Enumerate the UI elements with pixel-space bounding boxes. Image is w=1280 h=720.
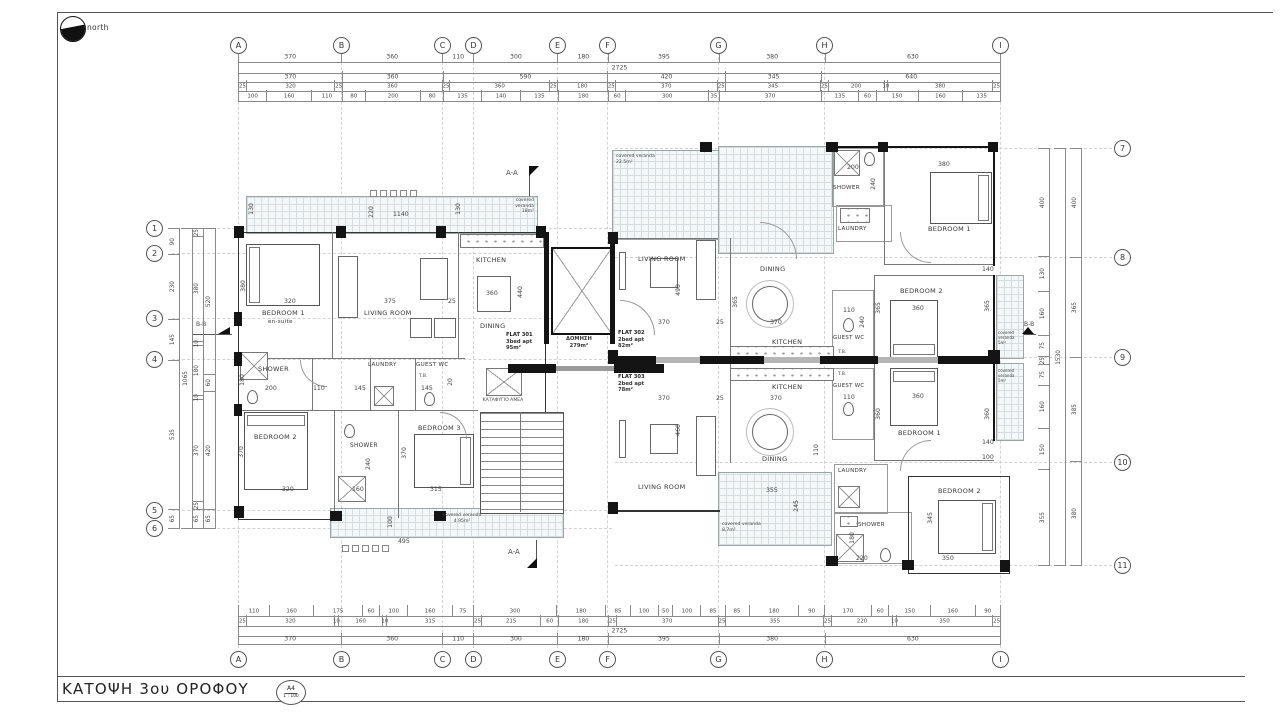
grid-bubble-F-bottom: F [599,651,616,668]
veranda-302-right-label: covered veranda5m² [998,330,1020,345]
right-dim-overall: 1530 [1054,148,1066,566]
wall [832,146,995,148]
dim-segment: 380 [719,633,825,644]
door-swing [900,440,931,471]
dim-segment: 25 [192,501,203,509]
paper-size: A4 [285,685,297,694]
dim-segment: 180 [557,633,608,644]
dim-label: 145 [354,386,366,392]
dim-segment: 135 [821,90,859,101]
dim-segment: 135 [443,90,481,101]
wall [398,410,399,518]
dim-segment: 370 [192,399,203,501]
dim-label: 380 [241,280,247,292]
dim-label: 360 [912,394,924,400]
door-swing [900,232,931,263]
column [608,502,618,514]
landing-wall [556,366,616,371]
dim-label: 25 [716,320,724,326]
column [234,352,242,366]
dim-label: 365 [985,300,991,312]
bottom-dim-chain-grid: 370360110300180395380630 [238,633,1001,645]
dim-label: 370 [239,446,245,458]
dim-segment: 160 [1038,385,1049,429]
column [436,226,446,238]
room-label-shower: SHOWER [858,522,885,528]
dim-segment: 35 [708,90,719,101]
coffee-table [650,424,678,454]
grid-bubble-11: 11 [1114,557,1131,574]
tv-unit [619,420,626,458]
dim-label: 180 [240,374,246,386]
dim-label: 370 [402,447,408,459]
dim-segment: 300 [473,633,557,644]
dim-segment: 380 [719,51,825,62]
room-label-ensuite: en-suite [268,319,293,325]
dim-label: 460 [676,424,682,436]
veranda-301-top-label: covered veranda18m² [500,198,534,215]
wall [612,510,720,512]
dim-label: 200 [847,165,859,171]
grid-bubble-6: 6 [146,520,163,537]
dim-segment: 150 [876,90,918,101]
grid-bubble-4: 4 [146,351,163,368]
toilet [880,548,891,562]
sheet-border-left [57,12,58,702]
veranda-302-right [996,275,1024,359]
dim-segment: 65 [204,509,215,528]
room-label-bedroom2: BEDROOM 2 [938,488,981,495]
grid-bubble-C-top: C [434,37,451,54]
guestwc-303 [832,368,874,440]
grid-bubble-D-bottom: D [465,651,482,668]
section-marker-BB-right: B-B [1024,322,1034,328]
grid-bubble-H-top: H [816,37,833,54]
left-dim-chain-mid: 2538010180103702565 [192,228,204,529]
veranda-post [372,545,379,552]
toilet [247,390,258,404]
dining-table-round [752,414,788,450]
flat302-label: FLAT 3022bed apt82m² [618,330,645,350]
room-label-shower: SHOWER [258,366,289,373]
column [234,506,244,518]
grid-bubble-I-top: I [992,37,1009,54]
dim-label: 365 [733,296,739,308]
dim-segment: 180 [192,345,203,395]
veranda-303-right-label: covered veranda5m² [998,368,1020,383]
dim-label: 240 [366,458,372,470]
flat303-label: FLAT 3032bed apt78m² [618,374,645,394]
veranda-post [410,190,417,197]
flat301-label: FLAT 3013bed apt95m² [506,332,533,352]
dim-segment: 370 [719,90,821,101]
laundry-machines [840,208,870,223]
dim-segment: 630 [825,633,1000,644]
dim-label: 20 [448,378,454,386]
room-label-living: LIVING ROOM [638,484,686,491]
dim-segment: 365 [1070,257,1081,357]
wall [993,275,995,357]
veranda-post [370,190,377,197]
grid-bubble-A-top: A [230,37,247,54]
room-label-shower: SHOWER [350,443,378,449]
room-label-bedroom2: BEDROOM 2 [254,434,297,441]
flat-divider-wall [700,356,764,364]
drawing-title: ΚΑΤΟΨΗ 3ου ΟΡΟΦΟΥ [62,680,249,698]
room-label-guestwc: GUEST WC [833,336,864,342]
top-dim-chain-4: 1001601108020080135140135180603003537013… [238,90,1001,102]
kitchen-counter [730,368,834,381]
grid-bubble-E-bottom: E [549,651,566,668]
north-label: north [87,24,109,32]
grid-line-G [718,52,719,648]
sofa [338,256,358,318]
dim-segment: 90 [168,228,179,254]
basin [840,516,858,527]
veranda-post [380,190,387,197]
dim-segment: 380 [192,236,203,341]
room-label-laundry: LAUNDRY [368,362,397,368]
room-label-bedroom2: BEDROOM 2 [900,288,943,295]
grid-bubble-2: 2 [146,245,163,262]
washing-machine [838,486,860,508]
dim-label: 375 [384,299,396,305]
room-label-bedroom1: BEDROOM 1 [262,310,305,317]
dim-segment: 100 [238,90,266,101]
column [234,226,244,238]
dim-label: 180 [850,532,856,544]
dim-segment: 135 [520,90,558,101]
staircase [480,412,564,514]
dim-segment: 200 [365,90,421,101]
dim-segment: 420 [204,391,215,509]
dim-label: 240 [860,316,866,328]
dim-segment: 630 [825,51,1000,62]
dim-label: 380 [938,162,950,168]
drawing-sheet: north ΚΑΤΟΨΗ 3ου ΟΡΟΦΟΥ A4 1 : 100 A B C… [0,0,1280,720]
dim-label: 100 [982,455,994,461]
room-label-dining: DINING [760,266,785,273]
dim-label: 345 [928,512,934,524]
dim-segment: 110 [311,90,342,101]
wall [238,358,465,359]
dim-segment: 75 [1038,335,1049,356]
column [700,142,712,152]
dim-segment: 360 [341,51,442,62]
sofa [696,416,716,476]
dim-label: 360 [985,408,991,420]
dim-label: 100 [388,516,394,528]
grid-bubble-3: 3 [146,310,163,327]
column [330,511,342,521]
sheet-border-top [57,12,1273,13]
dim-segment: 60 [204,374,215,392]
column [234,404,242,416]
wall [238,410,478,411]
dim-segment: 180 [558,90,608,101]
wall [612,238,718,239]
dim-segment: 25 [1038,356,1049,364]
room-label-kitchen: KITCHEN [772,384,802,391]
wall [730,363,731,463]
dim-label: 200 [265,386,277,392]
dim-label: 490 [676,284,682,296]
scale-badge: A4 1 : 100 [276,680,306,705]
column [988,142,998,152]
veranda-303-bottom [718,472,832,546]
tv-unit [619,252,626,290]
veranda-post [342,545,349,552]
dim-segment: 25 [192,228,203,236]
dim-segment: 160 [1038,291,1049,335]
grid-bubble-7: 7 [1114,140,1131,157]
dim-segment: 60 [608,90,625,101]
grid-bubble-C-bottom: C [434,651,451,668]
armchair [420,258,448,300]
room-label-kitchen: KITCHEN [476,257,506,264]
grid-bubble-5: 5 [146,502,163,519]
room-label-guestwc: GUEST WC [416,362,449,368]
dim-segment: 75 [1038,364,1049,385]
grid-bubble-10: 10 [1114,454,1131,471]
dim-label: 440 [518,286,524,298]
veranda-301-bottom-label: covered veranda4.95m² [440,513,484,524]
room-label-laundry: LAUNDRY [838,226,867,232]
bed [246,244,320,306]
wall [458,232,459,358]
grid-bubble-F-top: F [599,37,616,54]
dim-label: 140 [982,267,994,273]
washing-machine [374,386,394,406]
grid-bubble-B-top: B [333,37,350,54]
dim-label: 110 [313,386,325,392]
dining-table-round [752,286,788,322]
dim-label: 370 [770,320,782,326]
veranda-301-top [246,196,538,234]
titleblock-line-top [57,676,1245,677]
dim-segment: 180 [557,51,608,62]
dim-segment: 160 [918,90,963,101]
dim-segment: 520 [204,228,215,374]
bed [930,172,992,224]
dim-segment: 60 [858,90,875,101]
dim-label: 1140 [393,212,409,218]
dim-label: 320 [282,487,294,493]
kitchen-counter [460,234,544,248]
grid-bubble-B-bottom: B [333,651,350,668]
wall [884,264,994,265]
grid-line-E [557,52,558,648]
dim-label: 110 [843,308,855,314]
dim-label: 110 [843,395,855,401]
label-tb: T.B. [419,374,427,380]
dim-segment: 65 [192,509,203,528]
room-label-dining: DINING [762,456,787,463]
core-wall [544,232,549,344]
column [1000,560,1010,572]
column [988,350,1000,364]
dim-segment: 160 [266,90,311,101]
section-flag-AA-bottom [527,558,537,568]
section-flag-AA-top [529,166,539,176]
right-dim-chain-inner: 400130160752575160150355 [1038,148,1050,566]
dim-label: 220 [856,556,868,562]
label-tb: T.B. [838,372,846,378]
grid-bubble-E-top: E [549,37,566,54]
dim-label: 320 [284,299,296,305]
dim-label: 140 [982,440,994,446]
grid-bubble-9: 9 [1114,349,1131,366]
dim-label: 25 [716,396,724,402]
dim-segment: 130 [1038,256,1049,292]
room-label-laundry: LAUNDRY [838,468,867,474]
dim-segment: 150 [1038,428,1049,469]
coffee-table [434,318,456,338]
landing-wall [614,364,664,373]
wall [874,275,875,357]
room-label-bedroom3: BEDROOM 3 [418,425,461,432]
dim-label: 315 [430,487,442,493]
left-dim-chain-inner: 5206042065 [204,228,216,529]
grid-bubble-D-top: D [465,37,482,54]
wall [884,148,885,264]
dim-segment: 300 [473,51,557,62]
room-label-guestwc: GUEST WC [833,384,864,390]
column [608,232,618,244]
grid-bubble-1: 1 [146,220,163,237]
veranda-post [362,545,369,552]
room-label-living: LIVING ROOM [364,310,412,317]
dim-segment: 370 [238,633,341,644]
flat-divider-wall [612,356,656,364]
north-arrow-icon [60,16,86,42]
room-label-bedroom1: BEDROOM 1 [928,226,971,233]
coffee-table [410,318,432,338]
label-tb: T.B. [838,350,846,356]
elevator-shaft [551,247,613,335]
dim-segment: 140 [481,90,520,101]
dim-label: 240 [871,178,877,190]
wall [874,460,994,461]
veranda-post [390,190,397,197]
dim-segment: 400 [1038,148,1049,256]
toilet [843,318,854,332]
north-arrow-fill [60,24,86,42]
dim-label: 130 [456,203,462,215]
dim-label: 145 [421,386,433,392]
dim-segment: 80 [420,90,443,101]
column [826,556,838,566]
dim-segment: 145 [168,319,179,360]
common-area-label: ΔΟΜΗΣΗ279m² [566,336,592,349]
titleblock-line-bottom [57,701,1245,702]
dim-segment: 65 [168,509,179,528]
dim-label: 360 [912,306,924,312]
shelter-label: ΚΑΤΑΦΥΓΙΟ ΑΜΕΑ [482,398,524,404]
dim-segment: 395 [608,633,718,644]
core-wall [610,232,615,344]
wall [993,363,995,441]
toilet [424,392,435,406]
dim-label: 365 [876,302,882,314]
dim-segment: 395 [608,51,718,62]
bed [414,434,474,488]
dim-segment: 300 [625,90,708,101]
scale-value: 1 : 100 [283,694,298,699]
dim-label: 370 [658,320,670,326]
grid-bubble-A-bottom: A [230,651,247,668]
wall [993,146,995,266]
bed [244,412,308,490]
dim-segment: 385 [1070,357,1081,462]
column [234,312,242,326]
veranda-post [382,545,389,552]
toilet [344,424,355,438]
stair-center-line [520,412,521,512]
grid-bubble-G-top: G [710,37,727,54]
dim-label: 160 [352,487,364,493]
dim-label: 360 [876,408,882,420]
dim-label: 370 [770,396,782,402]
shower-tray [834,150,860,176]
dim-label: 370 [658,396,670,402]
column [826,142,838,152]
bed [938,500,996,554]
dim-segment: 360 [341,633,442,644]
column [608,350,618,364]
dim-segment: 380 [1070,461,1081,565]
dim-label: 360 [486,291,498,297]
section-marker-AA-bottom: A-A [508,549,520,556]
dim-label: 495 [398,539,410,545]
room-label-shower: SHOWER [833,185,860,191]
wall [730,238,731,357]
dim-label: 130 [249,203,255,215]
section-flag-BB-left [218,327,230,334]
dim-label: 25 [448,299,456,305]
right-dim-chain-outer: 400365385380 [1070,148,1082,566]
dim-label: 350 [942,556,954,562]
grid-bubble-H-bottom: H [816,651,833,668]
toilet [843,402,854,416]
wall [334,410,335,518]
landing-wall [508,364,556,373]
grid-bubble-8: 8 [1114,249,1131,266]
dim-label: 355 [766,488,778,494]
grid-bubble-I-bottom: I [992,651,1009,668]
room-label-bedroom1: BEDROOM 1 [898,430,941,437]
dim-label: 110 [814,444,820,456]
wall [874,275,994,276]
column [878,142,888,152]
column [336,226,346,238]
left-dim-chain-outer: 9023014553565 [168,228,180,529]
section-marker-AA-top: A-A [506,170,518,177]
veranda-post [400,190,407,197]
wall [332,232,333,358]
dim-segment: 135 [962,90,1000,101]
room-label-kitchen: KITCHEN [772,339,802,346]
dim-segment: 400 [1070,148,1081,257]
veranda-303-bottom-label: covered veranda8,7m² [722,522,766,533]
veranda-post [352,545,359,552]
dim-segment: 355 [1038,469,1049,565]
veranda-302-label: covered veranda22.5m² [616,154,660,165]
dim-segment: 80 [342,90,365,101]
flat-divider-wall [820,356,878,364]
dim-segment: 110 [442,633,473,644]
dim-label: 220 [369,206,375,218]
